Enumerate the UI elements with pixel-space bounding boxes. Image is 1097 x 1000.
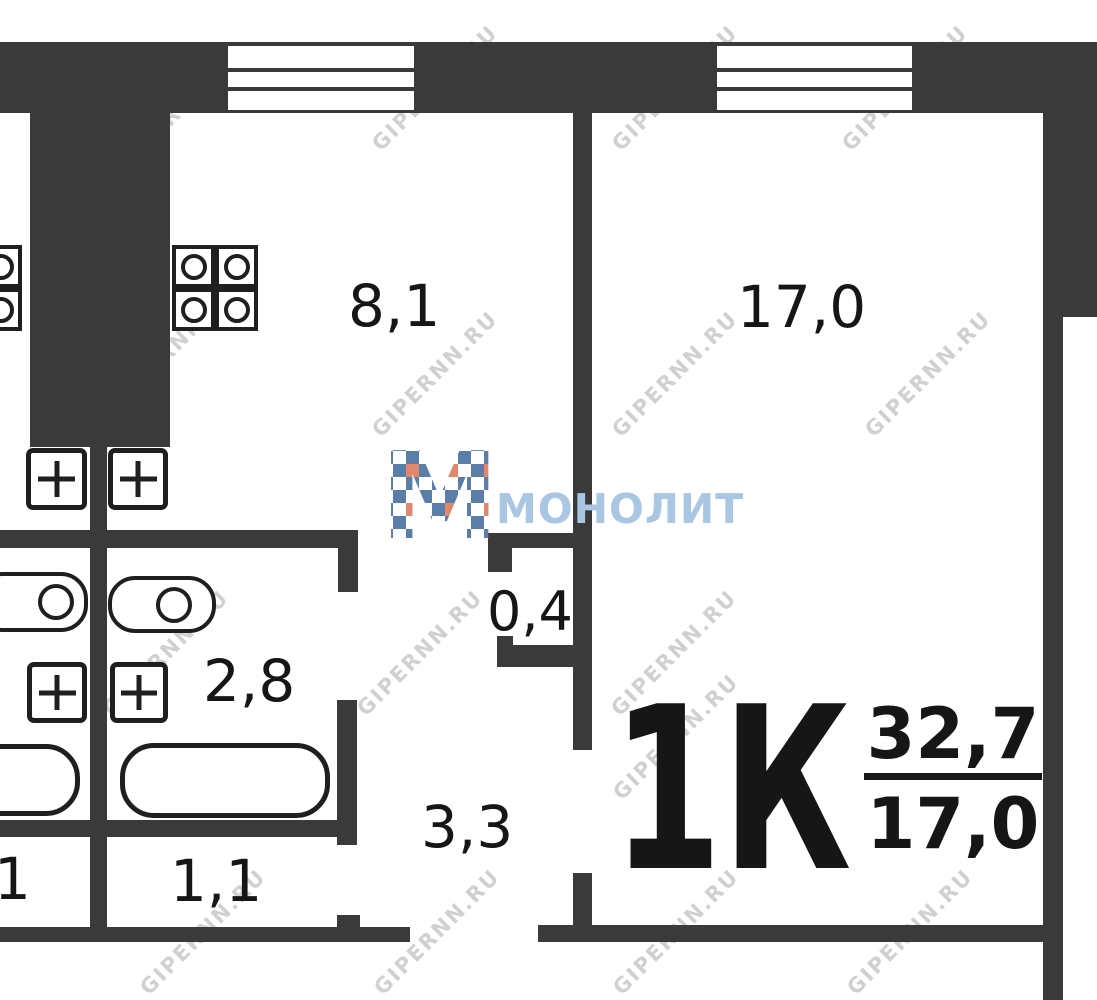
watermark-text: GIPERNN.RU	[607, 306, 742, 441]
area-label-entry: 1,1	[170, 852, 262, 910]
area-fraction: 32,7 17,0	[864, 698, 1042, 859]
stove-burner-icon	[215, 288, 258, 331]
wall-right-block	[1043, 42, 1097, 317]
stove-burner-icon	[215, 245, 258, 288]
area-label-room: 17,0	[737, 278, 866, 336]
wall-right	[1043, 317, 1063, 1000]
watermark-text: GIPERNN.RU	[352, 585, 487, 720]
area-label-kitchen: 8,1	[348, 277, 440, 335]
sink-cross-icon-neighbor-2	[27, 662, 87, 723]
monolit-logo-text: МОНОЛИТ	[496, 489, 744, 530]
vent-shaft-block	[30, 113, 170, 447]
monolit-logo-icon: М	[380, 438, 499, 558]
wall-room-door-stub	[573, 873, 592, 935]
wall-top	[0, 42, 1097, 113]
stove-burner-icon	[0, 288, 22, 331]
area-label-closet: 0,4	[487, 585, 573, 639]
wall-bottom-left	[0, 927, 410, 942]
wall-bathroom-top	[0, 530, 358, 548]
gas-stove-icon	[172, 245, 258, 331]
sink-cross-icon-2	[110, 662, 168, 723]
wall-bathroom-divider	[90, 447, 107, 927]
apartment-type-label: 1К	[612, 678, 851, 904]
living-area-value: 17,0	[864, 780, 1042, 859]
door-jamb-bathroom	[338, 548, 358, 592]
stove-burner-icon	[172, 288, 215, 331]
sink-cross-icon-neighbor	[26, 448, 87, 510]
total-area-value: 32,7	[864, 698, 1042, 780]
watermark-text: GIPERNN.RU	[860, 306, 995, 441]
bathtub-icon-neighbor	[0, 744, 80, 816]
bathtub-icon	[120, 743, 330, 818]
wall-bathroom-bottom	[0, 820, 357, 837]
door-jamb-entry	[337, 915, 360, 929]
area-label-bathroom: 2,8	[203, 652, 295, 710]
window-icon-room	[717, 46, 912, 110]
window-icon-kitchen	[228, 46, 414, 110]
toilet-icon-neighbor	[0, 572, 88, 632]
toilet-icon	[108, 576, 216, 633]
area-label-neighbor-partial: 1	[0, 850, 31, 908]
gas-stove-icon-neighbor	[0, 245, 22, 331]
sink-cross-icon	[108, 448, 168, 510]
stove-burner-icon	[0, 245, 22, 288]
closet-wall-bottom	[497, 645, 578, 667]
floor-plan: GIPERNN.RUGIPERNN.RUGIPERNN.RUGIPERNN.RU…	[0, 0, 1097, 1000]
wall-bottom-right	[538, 925, 1063, 942]
stove-burner-icon	[172, 245, 215, 288]
area-label-hallway: 3,3	[421, 798, 513, 856]
